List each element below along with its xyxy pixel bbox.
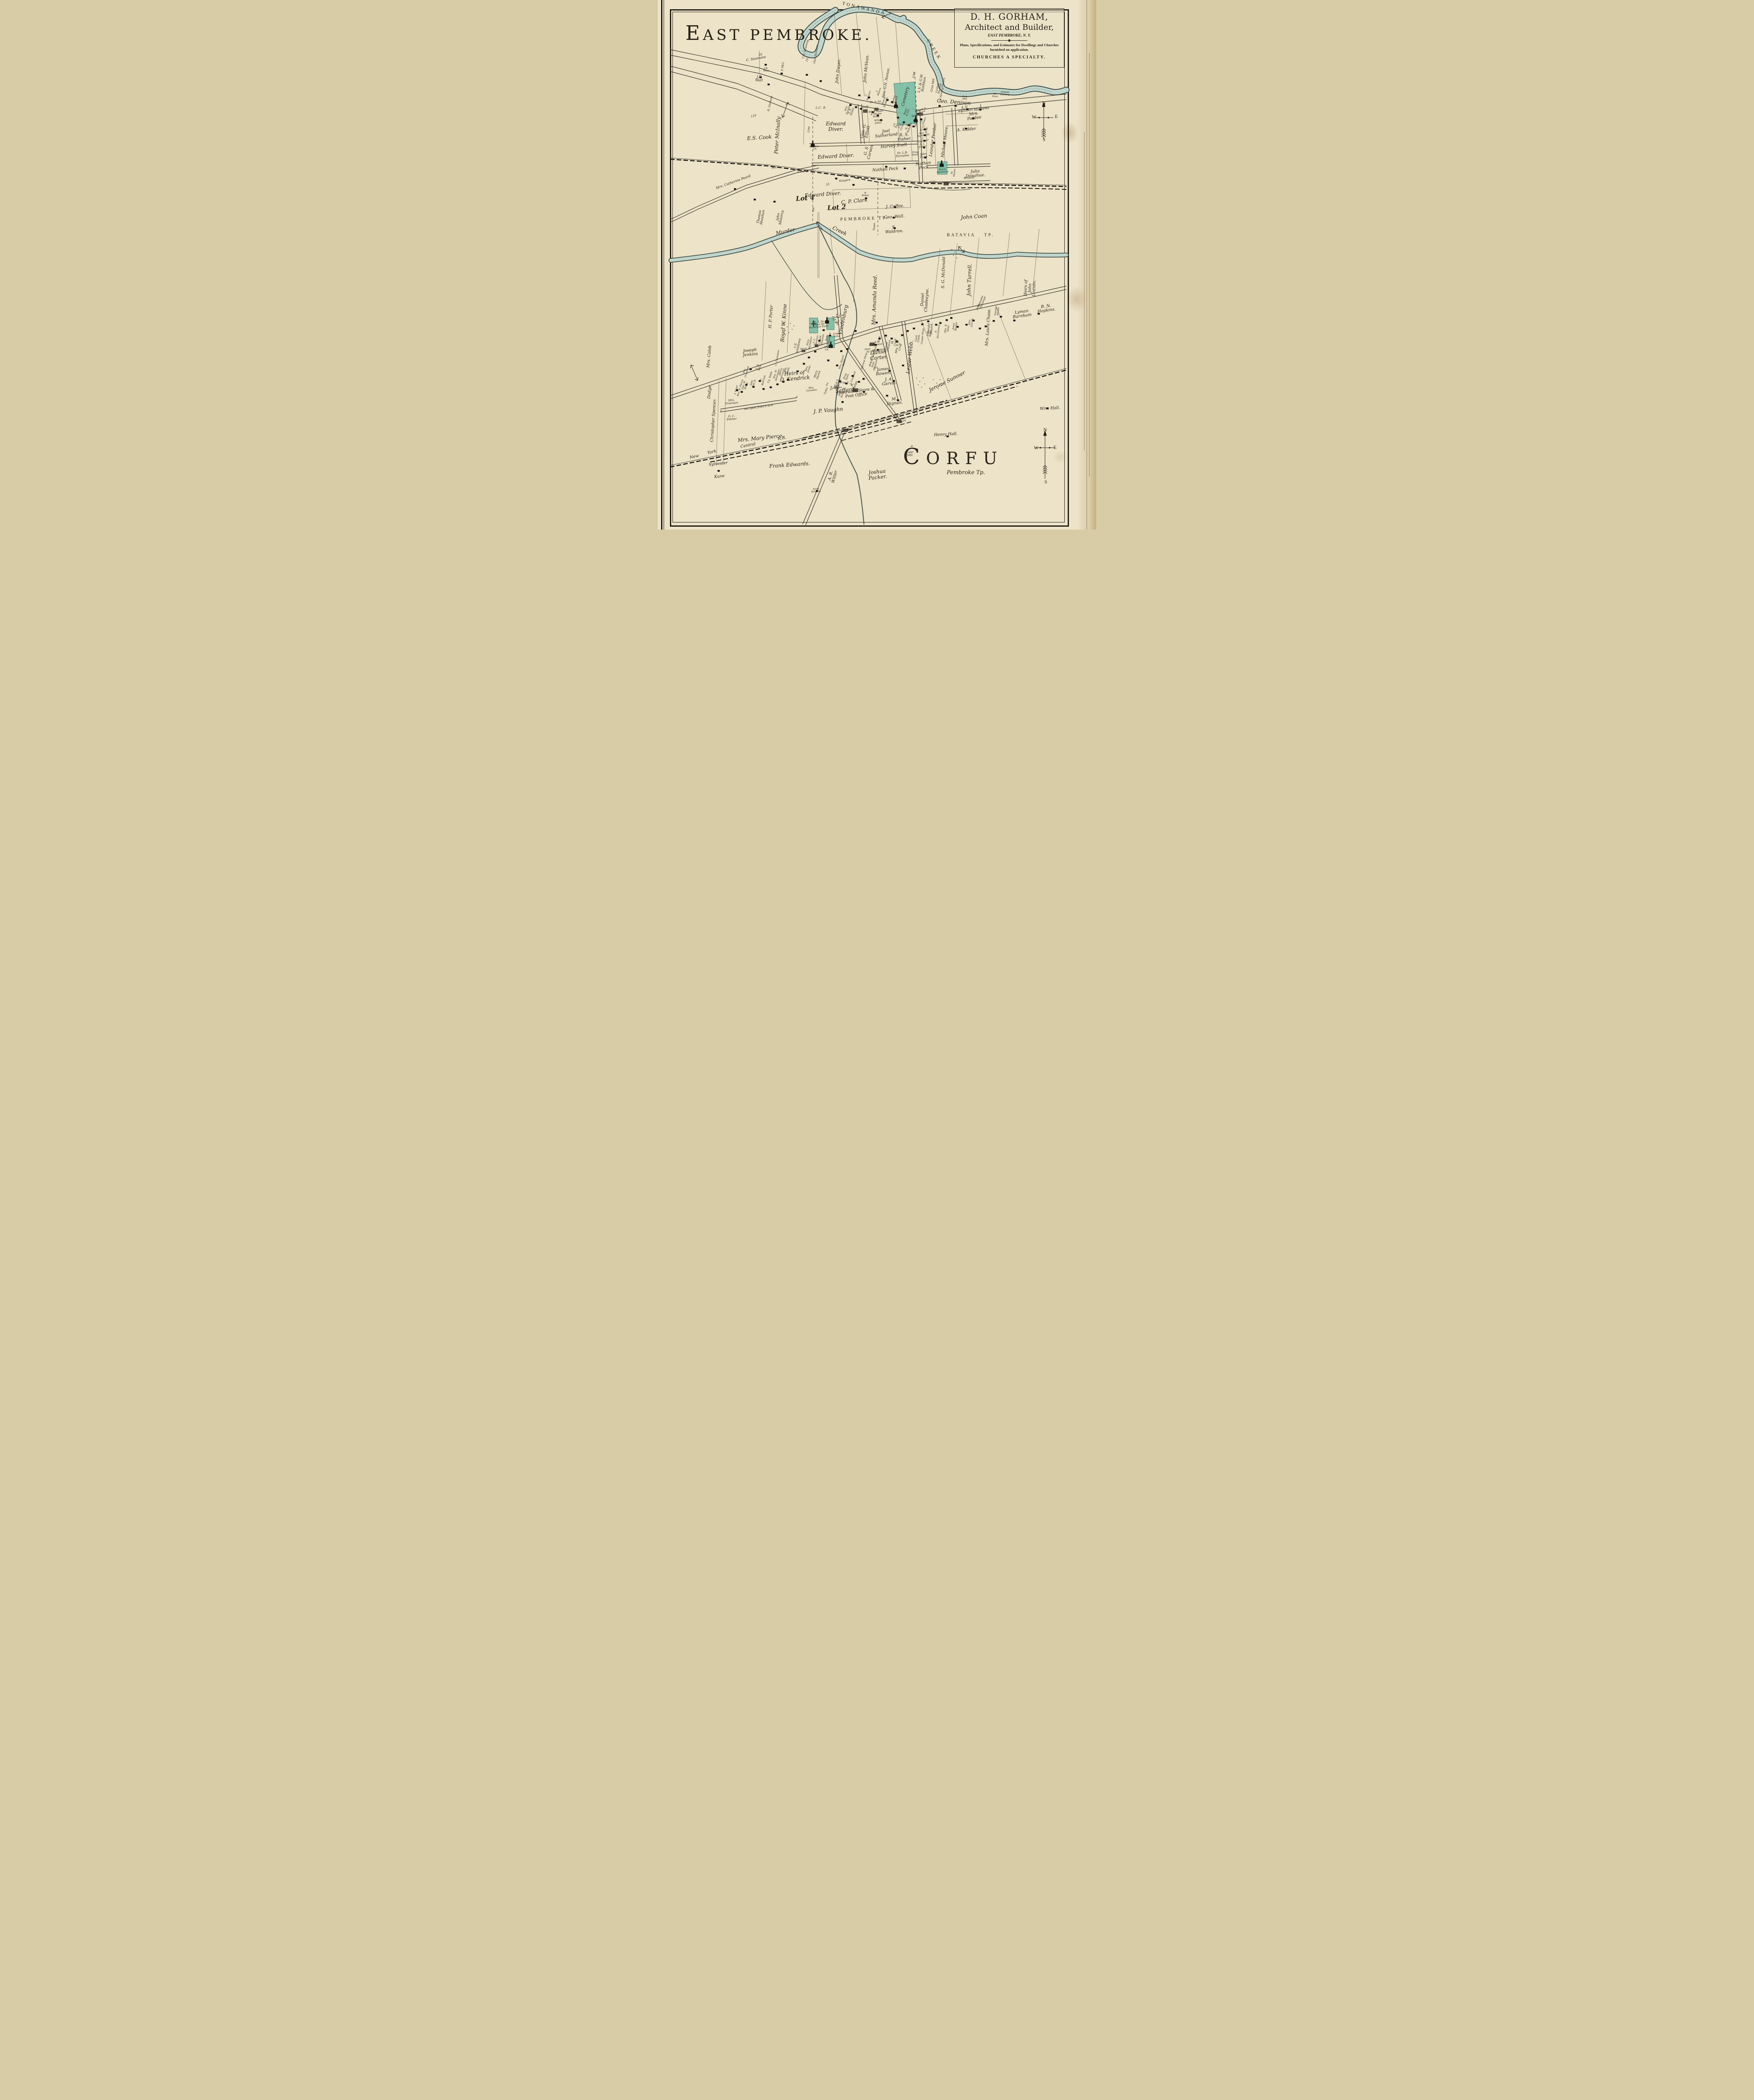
map-label: Mrs. Maxim Hotel bbox=[838, 354, 847, 370]
map-label: Mrs. Freeman bbox=[725, 399, 739, 406]
map-label: E. J. Fisher bbox=[918, 142, 926, 149]
map-label: Drug Store bbox=[843, 373, 850, 381]
map-label: not open from d to d bbox=[744, 404, 773, 411]
map-label: Store bbox=[914, 121, 919, 128]
map-label: N bbox=[1042, 101, 1045, 106]
map-label: Frank Edwards bbox=[818, 334, 825, 345]
map-label: George Adams bbox=[994, 307, 1000, 316]
map-label: Blk. S. Sp. Wagon Sp. Furniture Store bbox=[809, 320, 829, 330]
map-labels-layer: TONAWANDACREEKC. Seamans20J.B. WaitP. Mc… bbox=[658, 0, 1096, 530]
map-label: Falls bbox=[929, 181, 936, 184]
map-label: C. P. Clark bbox=[841, 197, 868, 205]
map-label: Tubbs bbox=[824, 387, 829, 395]
ad-divider bbox=[991, 40, 1027, 41]
map-label: J. Coffee. bbox=[886, 204, 904, 209]
map-label: B. N. Hopkins. bbox=[1037, 303, 1056, 314]
atlas-page: TONAWANDACREEKC. Seamans20J.B. WaitP. Mc… bbox=[658, 0, 1096, 530]
map-label: Lot bbox=[812, 207, 815, 213]
map-label: J. Munro bbox=[874, 87, 882, 96]
map-label: Dodge bbox=[707, 386, 713, 399]
map-label: Depot bbox=[943, 182, 951, 185]
map-label: C.E. Whittlesey bbox=[793, 338, 801, 354]
map-label: Geo. G. Elliott bbox=[860, 123, 871, 139]
map-label: R.R. bbox=[841, 173, 848, 177]
map-label: C. Babcock. bbox=[759, 374, 767, 386]
map-label: Joel Sutherland bbox=[874, 128, 898, 139]
map-label: Mrs. Catherine Peard bbox=[715, 174, 751, 190]
map-label: W bbox=[1032, 115, 1036, 120]
map-label: G. S. Corwin bbox=[898, 121, 905, 131]
map-label: Cemetery bbox=[901, 86, 910, 106]
map-label: Dr. L.B. Parmelee. bbox=[895, 151, 910, 158]
map-label: Wm. Crawford. bbox=[742, 365, 750, 378]
map-label: Mrs. Pardee bbox=[966, 111, 982, 122]
map-label: J. P. Vaughn bbox=[814, 407, 843, 415]
map-label: Nathan Peck bbox=[916, 161, 932, 171]
page-title: EAST PEMBROKE. bbox=[685, 22, 872, 45]
map-label: M. S bbox=[843, 381, 849, 385]
map-label: Harness Shop bbox=[861, 353, 868, 370]
map-label: Edward Diver. bbox=[804, 190, 841, 198]
ad-location: EAST PEMBROKE, N. Y. bbox=[955, 34, 1064, 38]
map-label: Mrs. Amanda Reed. bbox=[871, 274, 878, 325]
map-label: David Crawford bbox=[885, 340, 892, 352]
map-label: PEMBROKE TP. bbox=[840, 215, 889, 222]
map-label: Frank Edwards. bbox=[769, 461, 810, 469]
map-label: N.Y. bbox=[772, 166, 777, 170]
map-label: W bbox=[1034, 446, 1039, 451]
map-label: Cheese Factory. bbox=[1000, 91, 1010, 96]
map-label: Central bbox=[740, 442, 756, 449]
map-label: John Turrell. bbox=[966, 263, 973, 296]
map-label: Willett Jones bbox=[874, 119, 882, 125]
map-label: E bbox=[1053, 445, 1056, 450]
map-label: John Coan bbox=[919, 152, 927, 159]
map-label: Freight House bbox=[897, 417, 907, 423]
map-label: Edward Diver. bbox=[817, 152, 854, 160]
map-label: 129 bbox=[750, 114, 756, 118]
map-label: Harvey Snell bbox=[880, 143, 907, 150]
map-label: 101 bbox=[805, 56, 810, 63]
map-label: G. S Corwin bbox=[863, 143, 874, 160]
map-label: A. C. Vredenburg bbox=[832, 303, 849, 336]
map-label: C. Champion bbox=[775, 350, 780, 366]
map-label: N bbox=[1043, 428, 1047, 433]
ad-specialty: CHURCHES A SPECIALTY. bbox=[955, 55, 1064, 60]
map-label: O. C. Palmer bbox=[727, 415, 737, 421]
map-label: L.C. B. bbox=[816, 107, 826, 110]
map-label: Michael Moore. bbox=[940, 125, 949, 157]
map-label: BATAVIA bbox=[947, 233, 975, 237]
map-label: Cath'c. Ch. bbox=[811, 145, 819, 150]
map-label: Central bbox=[798, 170, 809, 173]
map-label: M. Dignan. bbox=[886, 396, 903, 407]
map-label: M. Moore bbox=[951, 168, 956, 177]
map-label: T.A. Webb. bbox=[767, 370, 773, 383]
map-label: Black Smith & Wagon Shop. bbox=[869, 110, 884, 119]
map-label: Mrs. E.W. Croff bbox=[895, 340, 903, 354]
map-label: Ira bbox=[826, 383, 830, 387]
map-label: Drug Store bbox=[911, 151, 919, 156]
map-label: A. R. Witter bbox=[827, 469, 838, 483]
map-label: John Dwyer. bbox=[835, 58, 842, 83]
map-label: E. McCormick bbox=[934, 324, 940, 339]
map-label: W. Hass bbox=[992, 93, 998, 98]
map-label: M.E. Ch. bbox=[824, 346, 830, 351]
map-label: A. Kidder bbox=[957, 127, 976, 132]
advertisement-box: D. H. GORHAM, Architect and Builder, EAS… bbox=[954, 8, 1064, 68]
map-label: S bbox=[1045, 479, 1047, 484]
map-label: J. A. Garvin. bbox=[881, 377, 897, 387]
ad-profession: Architect and Builder, bbox=[955, 23, 1064, 32]
map-label: Carding Machine & Heading Factory bbox=[935, 76, 946, 100]
map-label: R.R. bbox=[777, 436, 787, 441]
map-label: Heirs of John Lincoln. bbox=[1024, 280, 1037, 297]
map-label: Jerome Sumner bbox=[928, 370, 966, 393]
map-label: Jonas Banton bbox=[952, 322, 958, 331]
map-label: Royal W. Kinne bbox=[780, 304, 788, 342]
secondary-title: CORFU bbox=[903, 444, 1003, 470]
map-label: Branch. bbox=[964, 176, 975, 179]
map-label: Creek bbox=[832, 225, 848, 236]
map-label: J.B. Wait bbox=[763, 67, 769, 72]
map-label: B.N. Hopkins bbox=[872, 341, 882, 347]
map-label: Niagara bbox=[839, 178, 851, 183]
map-label: Henry Hall. bbox=[934, 432, 958, 438]
map-label: S. G. McDonald bbox=[941, 257, 946, 289]
map-label: P. McI. bbox=[781, 61, 785, 71]
map-label: Town bbox=[873, 223, 876, 230]
map-label: John Wells bbox=[927, 330, 932, 337]
map-label: Mrs. Ovendon bbox=[806, 386, 817, 392]
map-label: H. P. Porter bbox=[768, 305, 774, 328]
map-label: John Malanvy. bbox=[775, 209, 785, 225]
map-label: Geo. Denison bbox=[813, 45, 819, 64]
map-label: L.V. & G.W. Rathbun. bbox=[917, 74, 927, 94]
map-label: Mrs. Caleb bbox=[706, 345, 713, 368]
map-label: CREEK bbox=[925, 39, 942, 61]
map-label: Clark Childs bbox=[915, 334, 921, 342]
map-label: Mary Hartshorn bbox=[806, 336, 813, 349]
map-label: Wm. Hall. bbox=[1040, 406, 1061, 412]
map-label: R. Willet. bbox=[862, 192, 870, 197]
map-label: J.W. Covert bbox=[919, 116, 927, 125]
map-label: S. Waldron. bbox=[885, 225, 903, 235]
map-label: Mrs. N. Reed bbox=[944, 323, 950, 333]
map-label: Hotel bbox=[861, 106, 869, 110]
map-label: Kane bbox=[714, 474, 725, 480]
map-label: Murder bbox=[775, 227, 796, 236]
map-label: Mary Pierce bbox=[813, 369, 822, 380]
map-label: Baptist Church bbox=[891, 95, 899, 105]
map-label: Line bbox=[912, 71, 916, 78]
map-label: D. Gorham. bbox=[767, 95, 774, 111]
map-label: Leander Pember bbox=[929, 123, 937, 157]
map-label: d bbox=[796, 396, 798, 399]
map-label: Bk. S. Sp. bbox=[870, 100, 882, 104]
map-label: S bbox=[1043, 137, 1045, 142]
map-label: J. Mathews bbox=[973, 103, 990, 112]
map-label: Depot bbox=[841, 428, 849, 432]
map-label: Store bbox=[911, 114, 918, 118]
map-label: 20 bbox=[759, 53, 762, 56]
map-label: New bbox=[689, 454, 699, 460]
map-label: E.S. Cook bbox=[747, 134, 772, 141]
map-label: John Hair Jr. bbox=[749, 378, 756, 388]
map-label: J.B Wait bbox=[755, 75, 763, 82]
map-label: Sylvester bbox=[709, 461, 728, 467]
map-label: E bbox=[1055, 114, 1058, 119]
map-label: Saw Mill bbox=[962, 95, 967, 100]
map-label: Mrs. Mary Pierce. bbox=[738, 433, 784, 443]
map-label: Edward Diver. bbox=[826, 121, 845, 132]
map-label: 55 bbox=[826, 183, 830, 187]
map-label: TP. bbox=[984, 233, 994, 237]
map-label: Terry Kinslow bbox=[811, 488, 821, 493]
map-label: Rural Seminary bbox=[936, 168, 948, 174]
map-label: E. H. Mills. bbox=[756, 363, 762, 371]
map-label: Mrs. Laura Chase. bbox=[985, 308, 992, 346]
map-label: Christopher Spencer. bbox=[710, 399, 717, 442]
map-label: d bbox=[720, 410, 722, 412]
map-label: C. Seamans bbox=[746, 55, 766, 63]
map-label: Daniel Chadeayne. bbox=[920, 288, 930, 312]
map-label: Line bbox=[807, 126, 811, 132]
map-label: R. S. Fisher. bbox=[897, 132, 911, 142]
map-label: John Coan bbox=[961, 213, 987, 220]
map-label: C. Spencer bbox=[864, 90, 872, 101]
map-label: Rano Physician bbox=[825, 332, 832, 344]
map-label: Lester Webb. bbox=[906, 340, 914, 374]
map-label: York bbox=[707, 449, 717, 455]
map-label: John McVean. bbox=[863, 54, 870, 83]
map-label: Store & P.O. bbox=[903, 108, 910, 117]
map-label: TONAWANDA bbox=[842, 2, 886, 16]
map-label: Joshua Packer. bbox=[868, 468, 887, 481]
map-label: Lyman Burnham bbox=[1012, 309, 1032, 320]
map-label: Thomas Monihan bbox=[756, 209, 766, 225]
map-label: Nathan Peck bbox=[872, 166, 899, 172]
map-label: Peter McInally bbox=[774, 116, 782, 154]
ad-services: Plans, Specifications, and Estimates for… bbox=[955, 43, 1064, 52]
map-label: Cooper Shop bbox=[921, 328, 925, 344]
secondary-title-sub: Pembroke Tp. bbox=[947, 470, 985, 476]
ad-name: D. H. GORHAM, bbox=[955, 12, 1064, 22]
map-label: Grist Mill bbox=[930, 79, 935, 92]
map-label: Joseph Jenkins bbox=[742, 348, 758, 358]
map-label: W. E. Babcock bbox=[904, 121, 913, 133]
map-label: John Lincoln bbox=[968, 318, 974, 328]
map-label: Mrs. G.H. Norton. bbox=[882, 67, 890, 98]
